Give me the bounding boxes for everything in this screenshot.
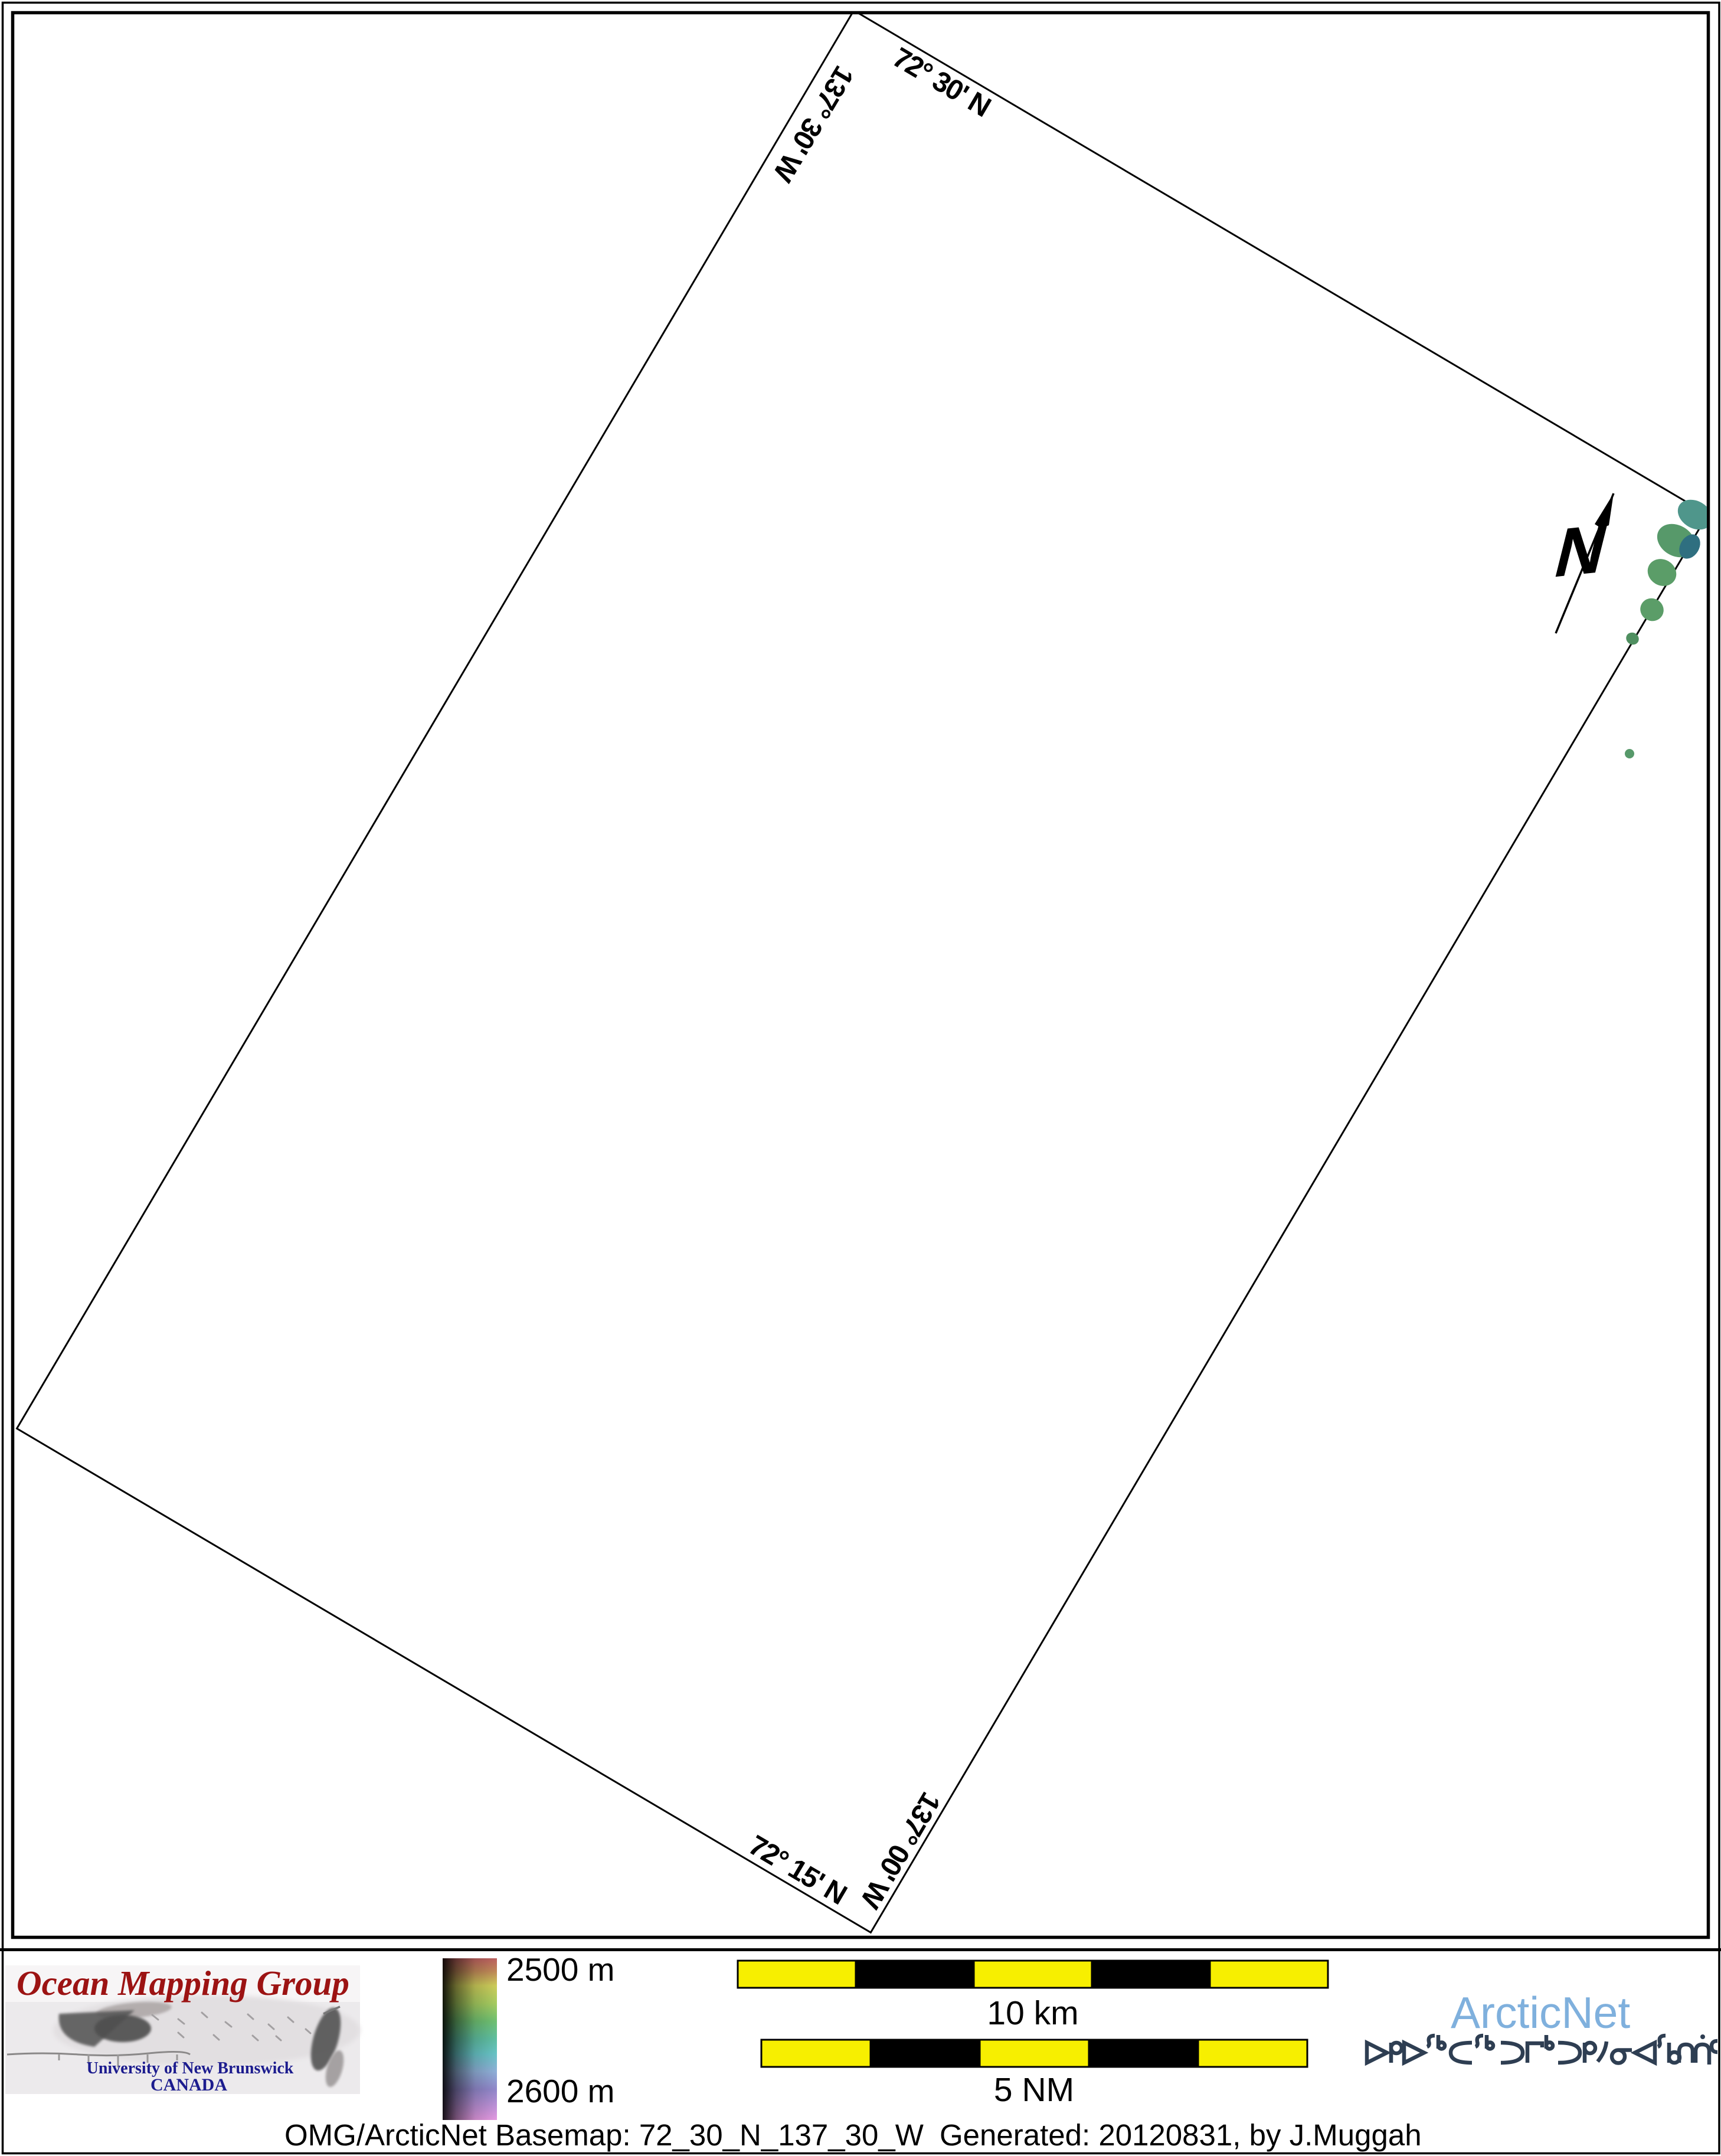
svg-text:10 km: 10 km bbox=[987, 1994, 1078, 2032]
svg-text:Ocean Mapping Group: Ocean Mapping Group bbox=[17, 1964, 349, 2003]
svg-text:2500 m: 2500 m bbox=[506, 1951, 614, 1988]
svg-text:OMG/ArcticNet Basemap: 72_30_N: OMG/ArcticNet Basemap: 72_30_N_137_30_W bbox=[284, 2118, 924, 2152]
svg-text:5 NM: 5 NM bbox=[994, 2071, 1074, 2109]
svg-text:Generated: 20120831, by J.Mugg: Generated: 20120831, by J.Muggah bbox=[940, 2118, 1422, 2152]
svg-text:CANADA: CANADA bbox=[150, 2075, 227, 2095]
svg-text:2600 m: 2600 m bbox=[506, 2073, 614, 2109]
svg-text:ArcticNet: ArcticNet bbox=[1451, 1988, 1630, 2037]
